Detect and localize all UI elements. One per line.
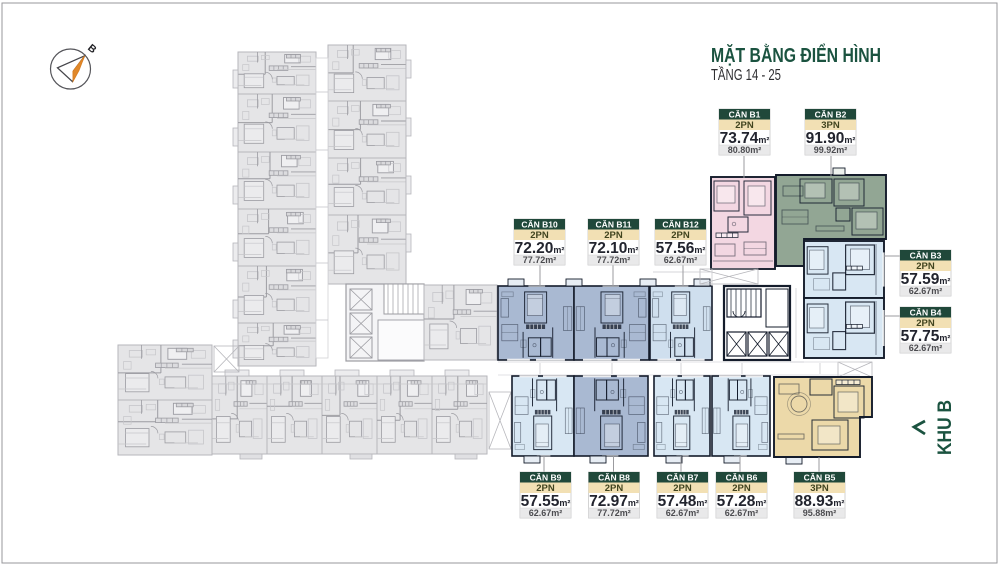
svg-text:62.67m²: 62.67m² [664,255,698,265]
svg-text:77.72m²: 77.72m² [523,255,557,265]
svg-text:TẦNG 14 - 25: TẦNG 14 - 25 [711,67,781,84]
svg-text:62.67m²: 62.67m² [909,286,943,296]
svg-text:62.67m²: 62.67m² [529,508,563,518]
svg-text:77.72m²: 77.72m² [597,255,631,265]
svg-text:99.92m²: 99.92m² [814,145,848,155]
svg-text:CĂN B1: CĂN B1 [729,109,761,119]
svg-text:CĂN B3: CĂN B3 [910,250,942,260]
svg-text:CĂN B4: CĂN B4 [910,307,942,317]
svg-text:KHU B: KHU B [935,400,956,455]
svg-text:CĂN B9: CĂN B9 [530,472,562,482]
svg-text:62.67m²: 62.67m² [666,508,700,518]
svg-text:CĂN B2: CĂN B2 [815,109,847,119]
svg-text:80.80m²: 80.80m² [728,145,762,155]
svg-text:CĂN B5: CĂN B5 [804,472,836,482]
svg-text:CĂN B8: CĂN B8 [598,472,630,482]
svg-text:CĂN B7: CĂN B7 [667,472,699,482]
svg-text:77.72m²: 77.72m² [597,508,631,518]
svg-text:CĂN B6: CĂN B6 [726,472,758,482]
svg-text:CĂN B10: CĂN B10 [521,219,558,229]
svg-text:62.67m²: 62.67m² [909,343,943,353]
svg-text:CĂN B12: CĂN B12 [662,219,699,229]
svg-text:62.67m²: 62.67m² [725,508,759,518]
svg-text:CĂN B11: CĂN B11 [596,219,632,229]
svg-text:MẶT BẰNG ĐIỂN HÌNH: MẶT BẰNG ĐIỂN HÌNH [711,43,881,67]
svg-text:95.88m²: 95.88m² [803,508,837,518]
